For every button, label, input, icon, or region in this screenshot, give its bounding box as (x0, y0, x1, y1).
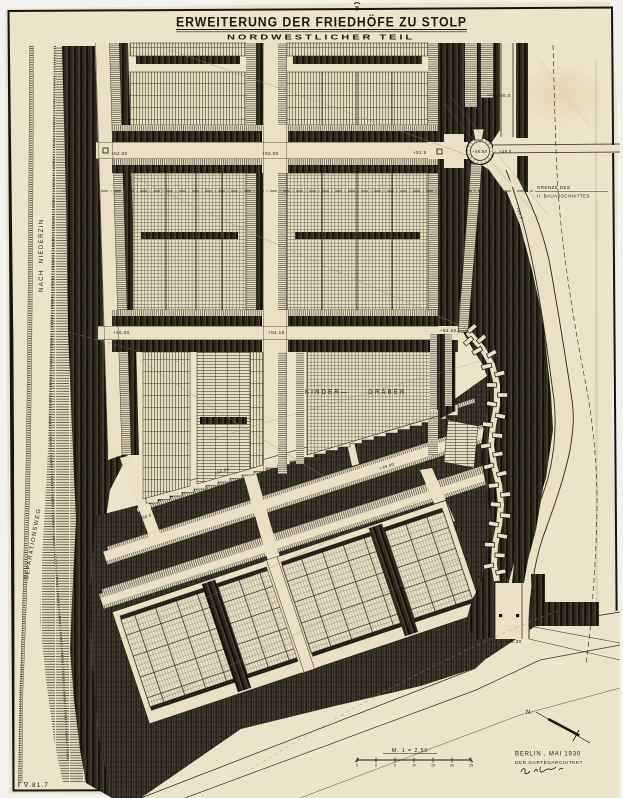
svg-text:GRÄBER: GRÄBER (368, 389, 407, 396)
svg-text:+43.5: +43.5 (507, 533, 520, 538)
svg-text:ERWEITERUNG DER FRIEDHÖFE ZU S: ERWEITERUNG DER FRIEDHÖFE ZU STOLP (176, 15, 467, 30)
svg-text:+54.18: +54.18 (268, 330, 285, 335)
svg-text:25: 25 (469, 764, 473, 768)
svg-text:NORDWESTLICHER TEIL: NORDWESTLICHER TEIL (227, 33, 415, 42)
svg-text:10: 10 (412, 764, 416, 768)
svg-text:ℓ ∇.81.7: ℓ ∇.81.7 (18, 781, 49, 789)
svg-text:N.: N. (526, 710, 532, 716)
svg-text:M. 1 = 2,50: M. 1 = 2,50 (392, 748, 428, 754)
svg-text:GRENZE DES: GRENZE DES (537, 185, 570, 190)
svg-text:KINDER—: KINDER— (305, 390, 349, 396)
svg-text:+54.50: +54.50 (440, 328, 457, 333)
svg-text:+50.0: +50.0 (497, 93, 511, 98)
svg-text:15: 15 (431, 764, 435, 768)
svg-text:DER GARTENARCHITEKT: DER GARTENARCHITEKT (515, 760, 583, 766)
svg-text:5: 5 (356, 764, 358, 768)
svg-text:II. BAUABSCHNITTES: II. BAUABSCHNITTES (537, 194, 590, 199)
svg-text:+49.50: +49.50 (472, 149, 488, 154)
svg-text:+52,00: +52,00 (262, 151, 279, 156)
svg-text:5: 5 (394, 764, 396, 768)
svg-text:0: 0 (375, 764, 377, 768)
svg-text:+46.30: +46.30 (505, 639, 522, 644)
svg-text:NACH NIEDERZIN: NACH NIEDERZIN (39, 218, 45, 292)
svg-text:20: 20 (450, 764, 454, 768)
svg-text:+52.00: +52.00 (111, 151, 128, 156)
svg-text:+55.00: +55.00 (113, 330, 130, 335)
svg-text:+49.0: +49.0 (499, 149, 512, 154)
svg-text:+51.5: +51.5 (413, 150, 427, 155)
svg-text:BERLIN , MAI 1930: BERLIN , MAI 1930 (515, 752, 581, 758)
